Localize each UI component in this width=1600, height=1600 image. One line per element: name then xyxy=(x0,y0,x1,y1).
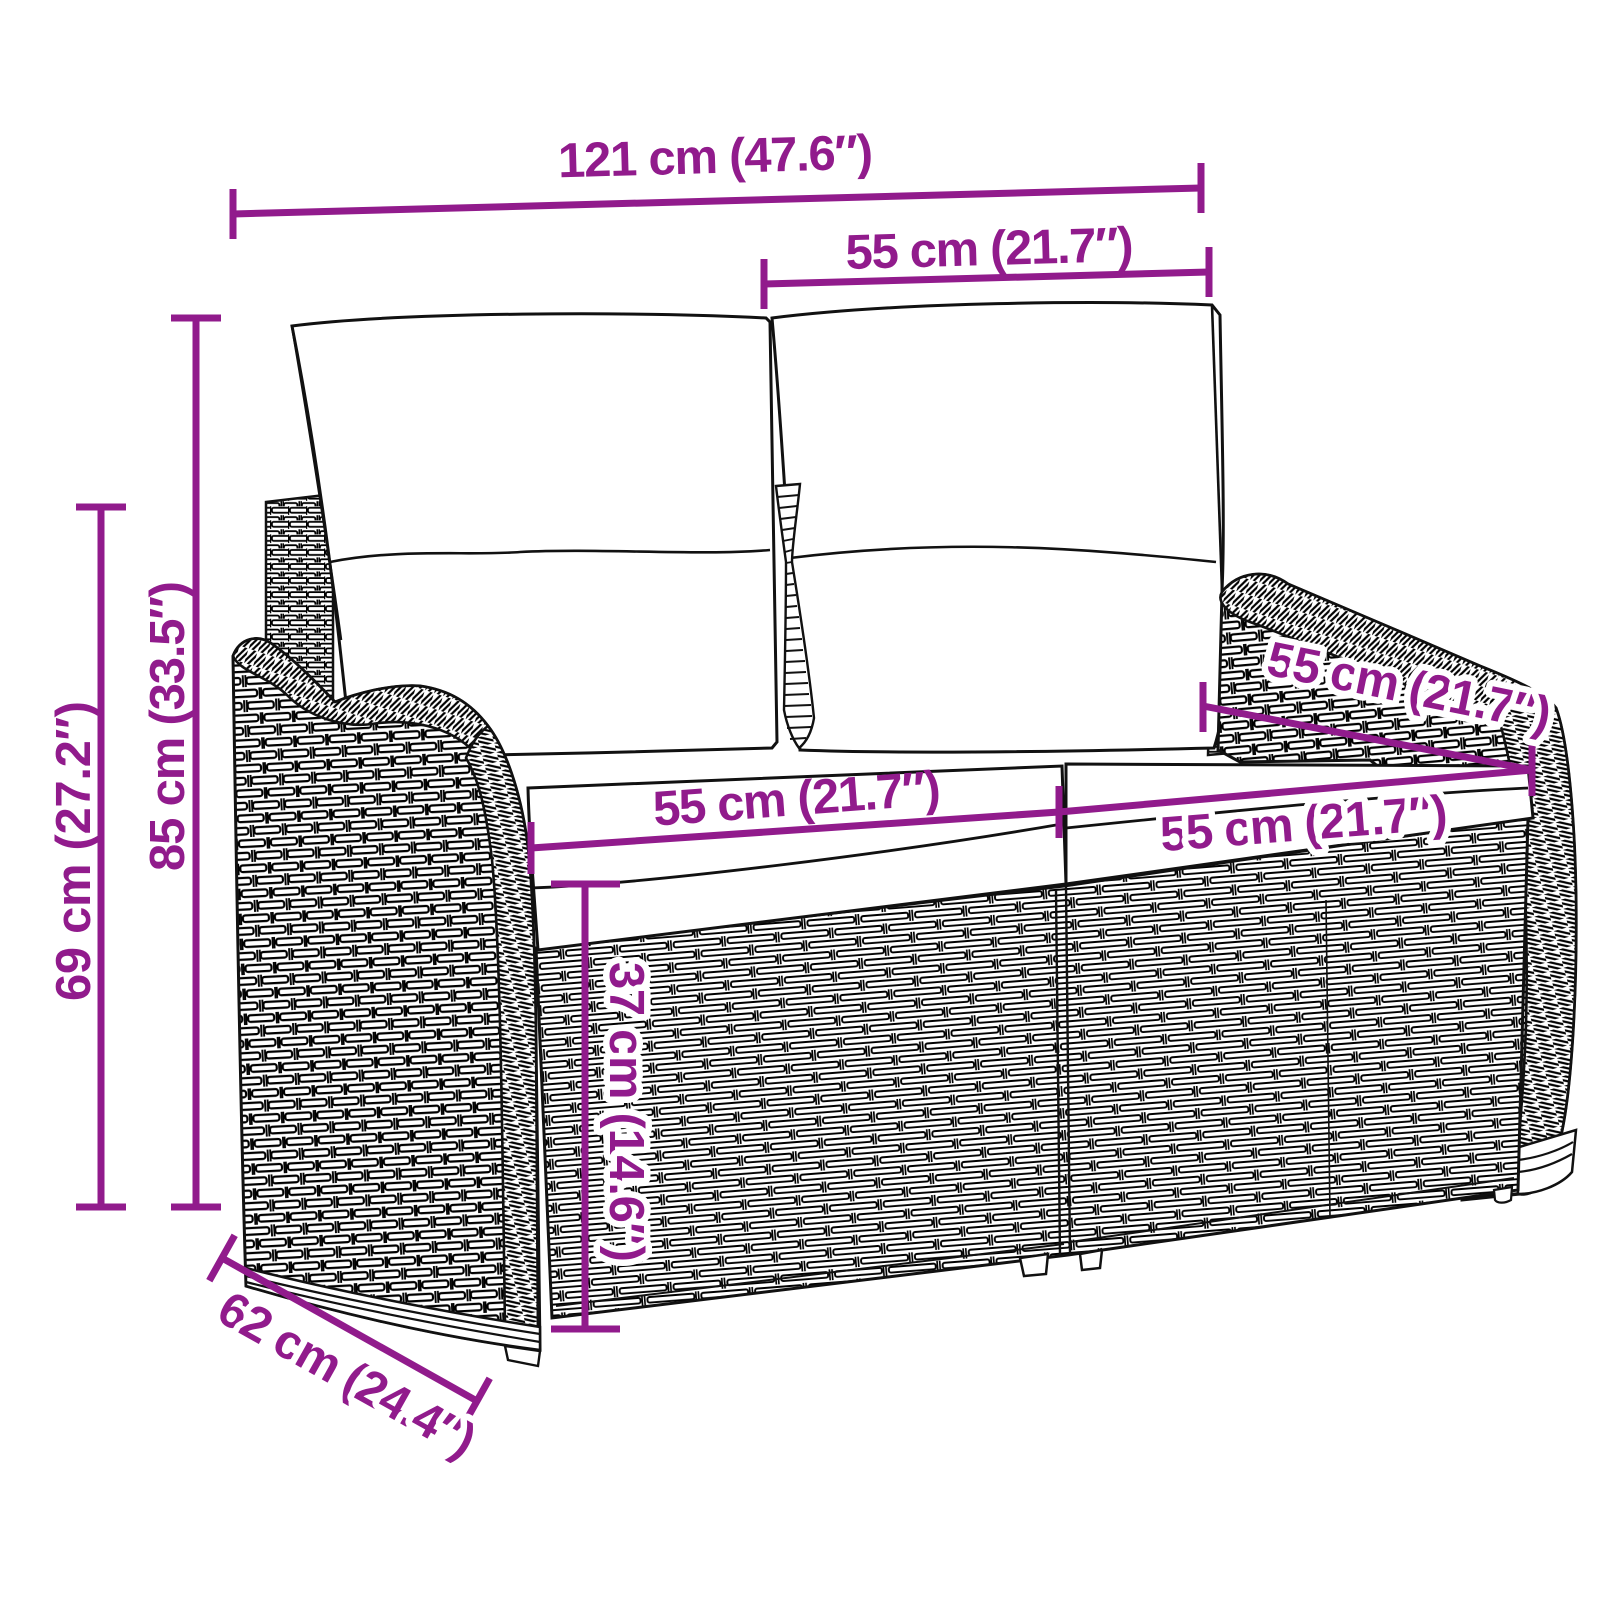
svg-text:55 cm (21.7″): 55 cm (21.7″) xyxy=(845,218,1134,280)
svg-text:37 cm (14.6″): 37 cm (14.6″) xyxy=(599,962,653,1262)
svg-text:85 cm (33.5″): 85 cm (33.5″) xyxy=(141,581,195,871)
svg-text:121 cm (47.6″): 121 cm (47.6″) xyxy=(557,126,873,189)
svg-text:69 cm (27.2″): 69 cm (27.2″) xyxy=(47,701,101,1001)
